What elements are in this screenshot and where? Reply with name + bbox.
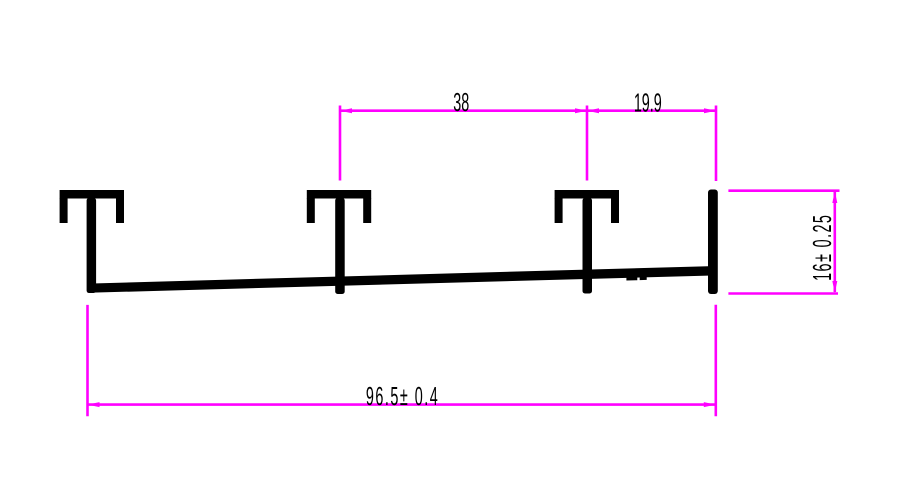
svg-text:19.9: 19.9 [634, 89, 662, 117]
svg-text:96.5± 0.4: 96.5± 0.4 [366, 383, 438, 411]
svg-text:38: 38 [453, 89, 469, 117]
